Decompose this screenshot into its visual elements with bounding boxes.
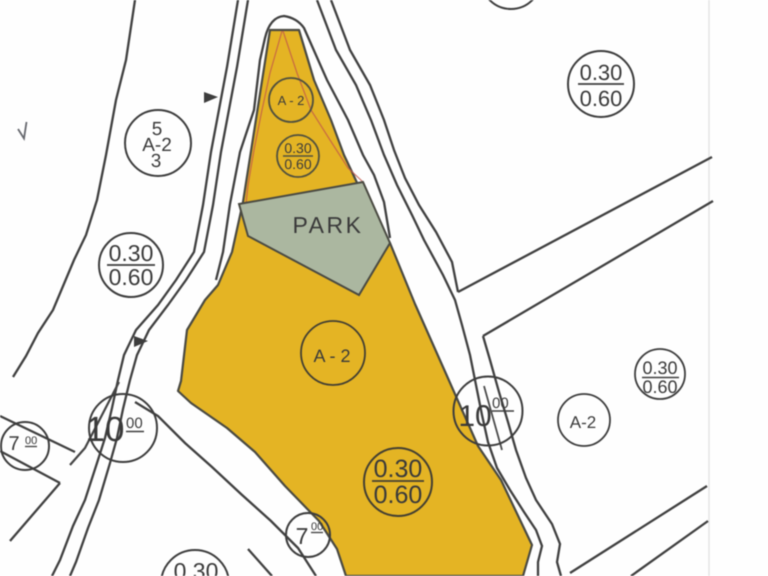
- svg-text:00: 00: [126, 415, 143, 432]
- svg-text:0.30: 0.30: [580, 60, 623, 85]
- svg-text:0.60: 0.60: [109, 264, 154, 290]
- svg-text:A - 2: A - 2: [278, 93, 305, 108]
- svg-text:0.30: 0.30: [284, 140, 311, 156]
- svg-text:A-2: A-2: [570, 413, 596, 432]
- svg-text:0.60: 0.60: [642, 377, 677, 397]
- svg-text:7: 7: [296, 523, 309, 549]
- svg-text:0.60: 0.60: [284, 156, 311, 172]
- svg-text:0.60: 0.60: [374, 481, 423, 509]
- svg-text:PARK: PARK: [293, 212, 364, 238]
- svg-text:0.30: 0.30: [642, 358, 677, 378]
- svg-text:00: 00: [25, 435, 37, 447]
- svg-text:10: 10: [458, 400, 491, 433]
- svg-text:0.30: 0.30: [374, 455, 423, 483]
- svg-text:0.60: 0.60: [580, 86, 623, 111]
- svg-text:00: 00: [311, 521, 323, 533]
- svg-text:0.30: 0.30: [109, 240, 154, 266]
- svg-text:A - 2: A - 2: [313, 346, 350, 366]
- svg-text:0.30: 0.30: [174, 558, 219, 576]
- svg-text:10: 10: [86, 410, 125, 449]
- svg-text:00: 00: [492, 395, 509, 412]
- svg-text:3: 3: [151, 151, 162, 172]
- svg-text:7: 7: [8, 433, 19, 455]
